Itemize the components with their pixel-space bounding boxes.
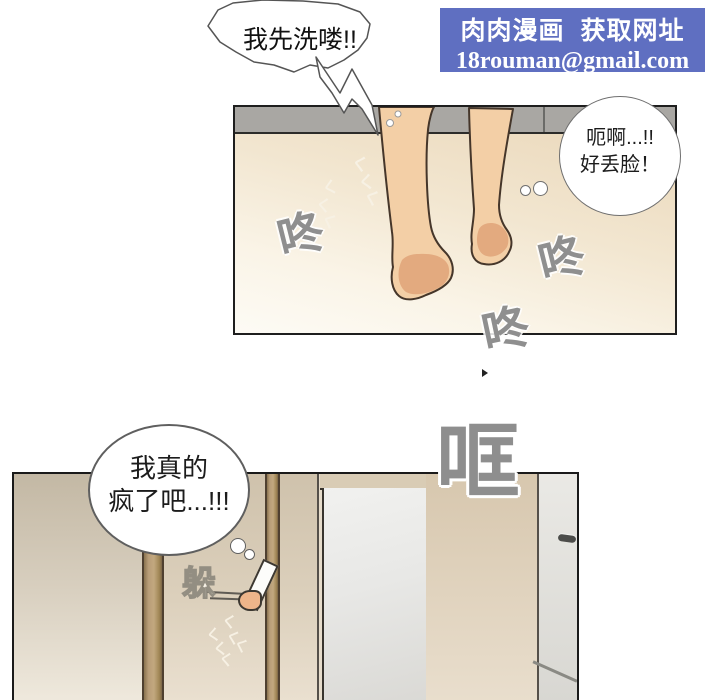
watermark-email: 18rouman@gmail.com: [440, 48, 705, 75]
sweat-drop: [395, 111, 401, 117]
sfx-clang: 哐: [436, 420, 520, 504]
bubble-trail-dot: [244, 549, 255, 560]
steam-mark: く: [218, 648, 236, 671]
speech-bubble-tail: [300, 55, 390, 140]
wall-corner-line: [317, 474, 319, 700]
sfx-hide: 躲: [182, 556, 216, 605]
thought-2-line-1: 我真的: [90, 452, 248, 485]
comic-page: 肉肉漫画 获取网址 18rouman@gmail.com く く く く く く…: [0, 0, 720, 700]
hiding-hand: [238, 590, 262, 611]
watermark-banner: 肉肉漫画 获取网址 18rouman@gmail.com: [440, 8, 705, 72]
thought-1-line-1: 呃啊...!!: [560, 125, 680, 152]
thought-bubble-1: 呃啊...!! 好丢脸！: [559, 96, 681, 216]
thought-bubble-2: 我真的 疯了吧...!!!: [88, 424, 250, 556]
door: [322, 488, 428, 700]
watermark-title: 肉肉漫画 获取网址: [440, 11, 705, 47]
cursor-mark: [482, 369, 488, 377]
thought-2-line-2: 疯了吧...!!!: [90, 485, 248, 518]
bubble-trail-dot: [520, 185, 531, 196]
speech-text: 我先洗喽!!: [225, 20, 375, 56]
bubble-trail-dot: [533, 181, 548, 196]
thought-1-line-2: 好丢脸！: [560, 152, 680, 179]
sfx-thud-3: 咚: [478, 302, 534, 358]
